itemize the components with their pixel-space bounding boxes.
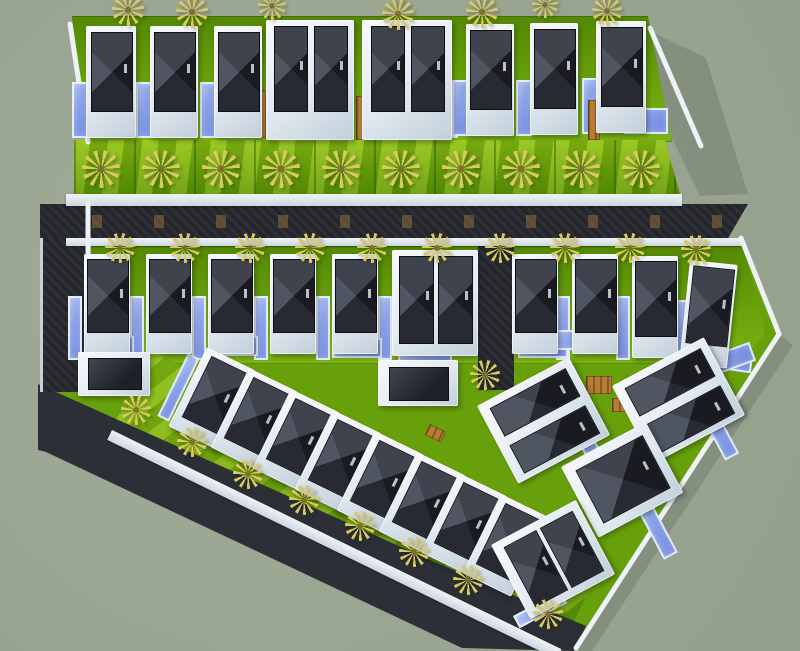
villa-roof: [470, 30, 512, 110]
villa-roof: [685, 265, 735, 347]
palm-tree: [142, 150, 180, 188]
villa-roof: [515, 259, 557, 333]
palm-tree: [453, 565, 483, 595]
villa-roof: [218, 32, 260, 112]
palm-tree: [357, 233, 387, 263]
aerial-site-plan: [0, 0, 800, 651]
villa-roof: [154, 32, 196, 112]
palm-tree: [105, 233, 135, 263]
garage-roof: [389, 367, 449, 401]
villa: [214, 26, 262, 138]
palm-tree: [382, 150, 420, 188]
palm-tree: [233, 459, 263, 489]
palm-tree: [170, 233, 200, 263]
wood-deck: [586, 376, 612, 394]
garage-roof: [88, 358, 142, 390]
villa-roof: [438, 256, 473, 344]
palm-tree: [262, 150, 300, 188]
sidewalk: [66, 194, 682, 206]
villa: [392, 250, 478, 356]
palm-tree: [615, 233, 645, 263]
palm-tree: [502, 150, 540, 188]
villa-roof: [534, 29, 576, 109]
palm-tree: [485, 233, 515, 263]
villa-roof: [335, 259, 377, 333]
palm-tree: [681, 235, 711, 265]
villa: [596, 21, 646, 133]
villa-roof: [211, 259, 253, 333]
palm-tree: [295, 233, 325, 263]
villa: [86, 26, 136, 138]
villa: [632, 256, 678, 358]
villa-roof: [274, 26, 308, 112]
villa: [466, 24, 514, 136]
villa: [332, 254, 378, 354]
villa-roof: [314, 26, 348, 112]
swimming-pool: [68, 296, 82, 360]
palm-tree: [345, 511, 375, 541]
palm-tree: [82, 150, 120, 188]
palm-tree: [533, 599, 563, 629]
palm-tree: [422, 233, 452, 263]
villa-roof: [273, 259, 315, 333]
palm-tree: [622, 150, 660, 188]
villa-roof: [91, 32, 133, 112]
villa-roof: [399, 256, 434, 344]
villa: [208, 254, 254, 354]
villa: [146, 254, 192, 354]
garage: [378, 360, 458, 406]
villa-roof: [635, 261, 677, 337]
villa: [150, 26, 198, 138]
palm-tree: [177, 427, 207, 457]
palm-tree: [202, 150, 240, 188]
villa-roof: [87, 259, 129, 333]
villa-roof: [371, 26, 405, 112]
villa-roof: [575, 259, 617, 333]
palm-tree: [532, 0, 558, 18]
garage: [78, 352, 150, 396]
palm-tree: [550, 233, 580, 263]
villa: [530, 23, 578, 135]
palm-tree: [289, 485, 319, 515]
villa: [572, 254, 618, 354]
villa: [512, 254, 558, 354]
swimming-pool: [616, 296, 630, 360]
wood-deck: [425, 424, 446, 443]
villa-roof: [411, 26, 445, 112]
palm-tree: [235, 233, 265, 263]
villa-roof: [149, 259, 191, 333]
villa-roof: [601, 27, 643, 107]
palm-tree: [470, 360, 500, 390]
swimming-pool: [316, 296, 330, 360]
villa: [362, 20, 452, 140]
road-mid: [40, 204, 748, 238]
villa: [270, 254, 316, 354]
villa: [266, 20, 354, 140]
palm-tree: [399, 537, 429, 567]
palm-tree: [442, 150, 480, 188]
palm-tree: [322, 150, 360, 188]
palm-tree: [562, 150, 600, 188]
palm-tree: [121, 395, 151, 425]
villa: [84, 254, 130, 354]
